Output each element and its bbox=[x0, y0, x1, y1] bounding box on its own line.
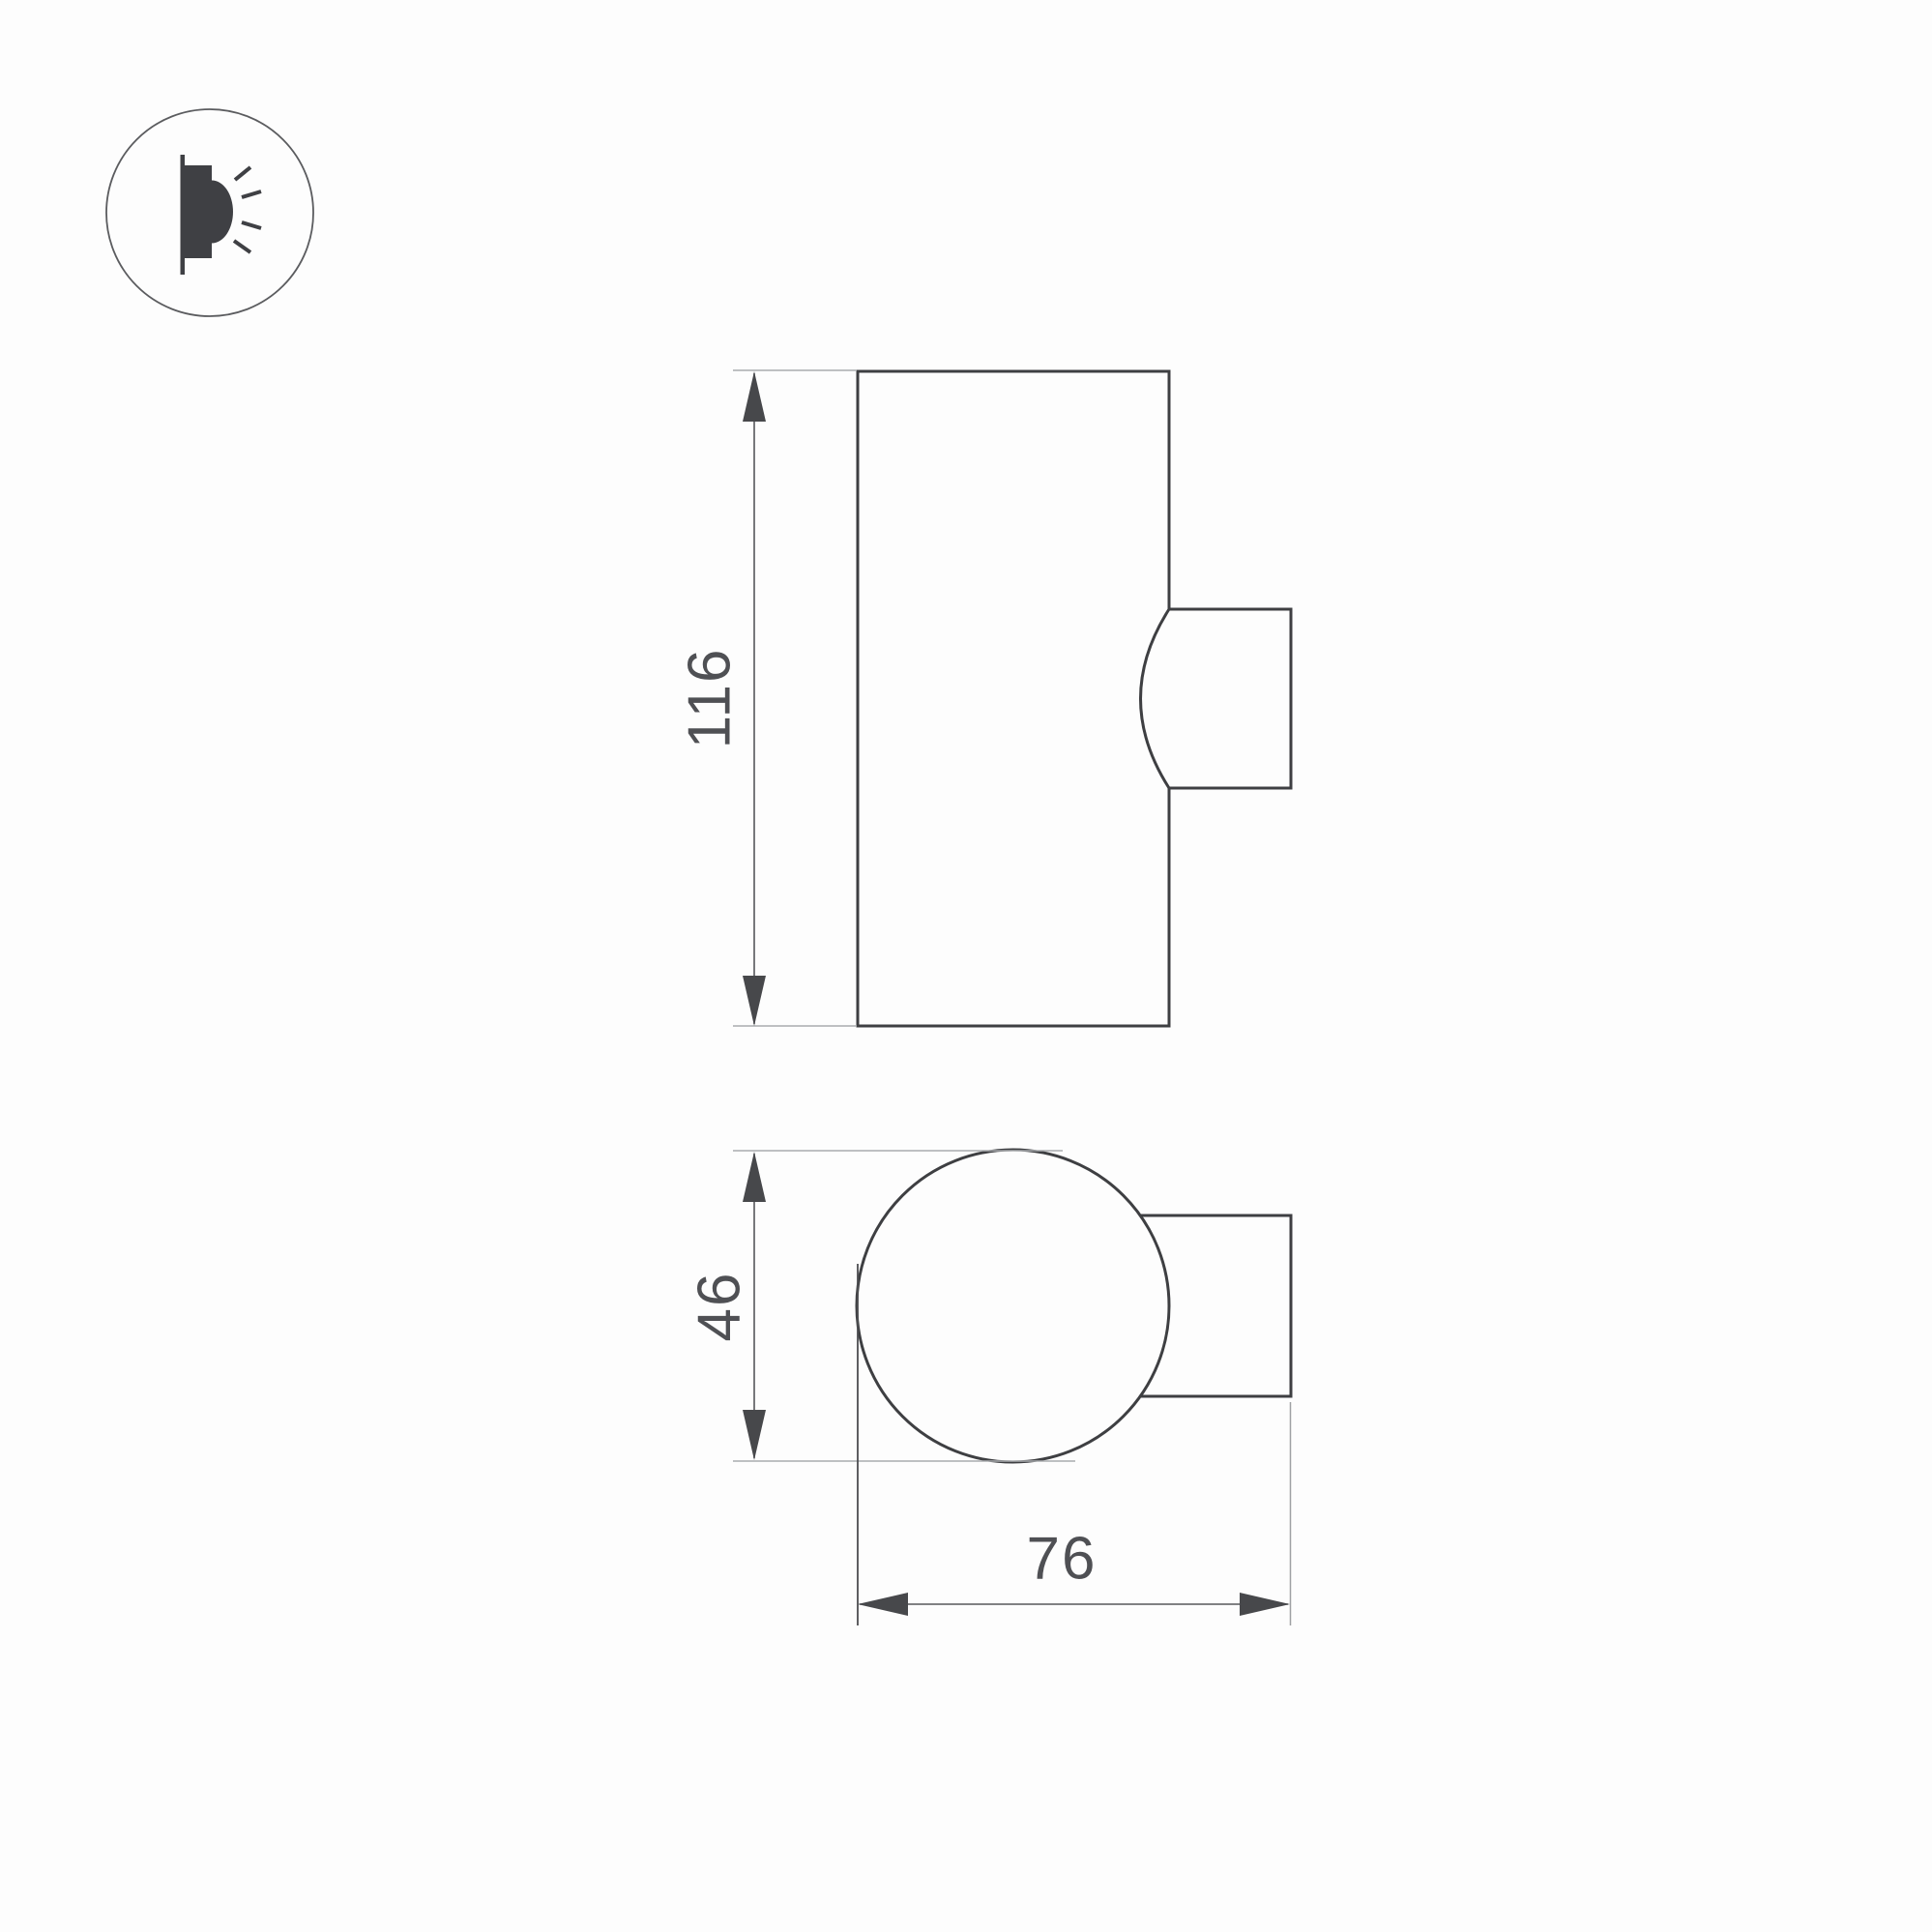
icon-lamp-body bbox=[185, 165, 212, 258]
drawing-sheet: 116 46 76 bbox=[0, 0, 1932, 1932]
side-view-lamp-body bbox=[858, 371, 1169, 1026]
dim-diameter-label: 46 bbox=[687, 1272, 753, 1342]
side-view-wall-bracket bbox=[1141, 609, 1292, 788]
icon-wall-line bbox=[181, 155, 186, 275]
top-view-lamp-body bbox=[857, 1150, 1169, 1462]
technical-drawing-canvas: 116 46 76 bbox=[0, 0, 1932, 1932]
dim-height-label: 116 bbox=[677, 648, 744, 749]
dim-depth-label: 76 bbox=[1027, 1526, 1098, 1593]
